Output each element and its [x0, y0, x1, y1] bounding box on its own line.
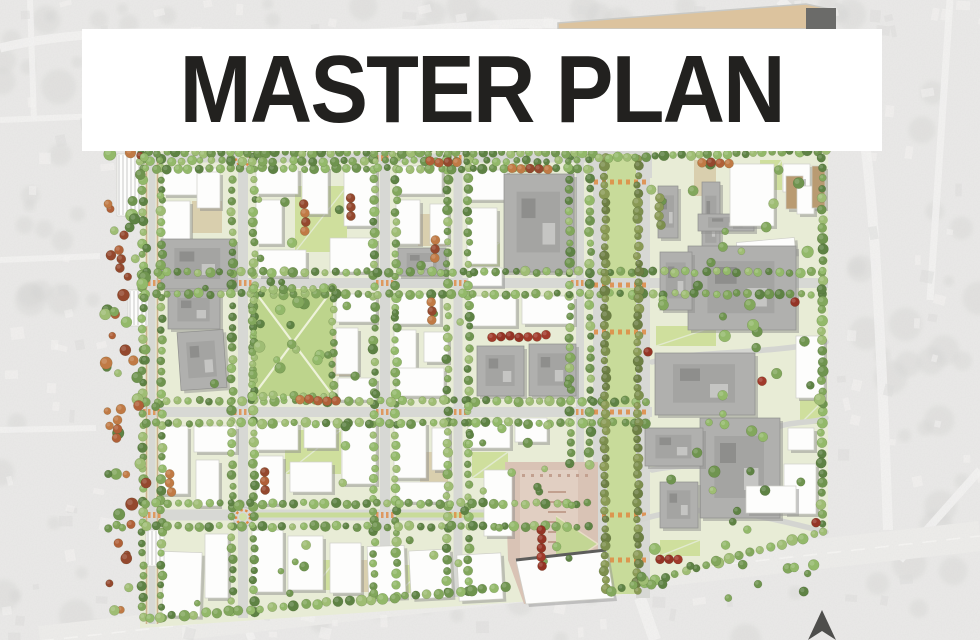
boulevard-median — [607, 154, 636, 594]
master-plan-page: MASTER PLAN — [0, 0, 980, 640]
title-banner: MASTER PLAN — [82, 29, 882, 151]
page-title: MASTER PLAN — [180, 42, 784, 138]
